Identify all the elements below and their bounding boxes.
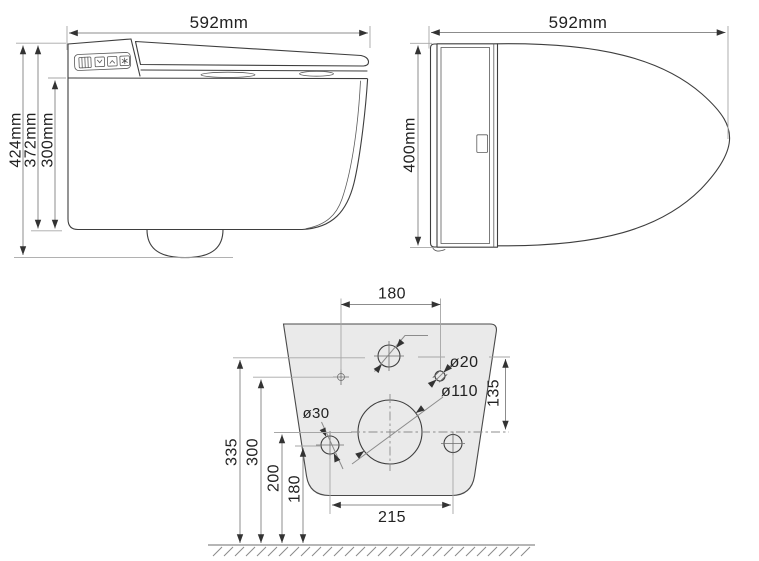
side-view: 592mm 424mm 372mm 300mm <box>8 13 371 258</box>
tank-top-edge <box>68 39 131 44</box>
label-300: 300 <box>245 438 262 466</box>
bowl-top-edge <box>68 78 367 79</box>
chevron-up-icon <box>110 60 115 63</box>
ground <box>208 545 535 556</box>
label-dia20: ø20 <box>450 354 479 371</box>
label-side-width: 592mm <box>190 13 249 32</box>
outlet-pipe <box>147 230 223 258</box>
hinge-damper-left <box>201 72 255 77</box>
label-200: 200 <box>266 464 283 492</box>
label-180-floor: 180 <box>287 475 304 503</box>
flush-button <box>477 135 488 153</box>
tank-box-outer <box>437 44 498 247</box>
label-dia110: ø110 <box>441 383 478 400</box>
dim-side-width: 592mm <box>67 13 370 50</box>
label-180-top: 180 <box>378 286 406 303</box>
label-top-length: 592mm <box>549 13 608 32</box>
asterisk-icon <box>122 58 127 64</box>
panel-button-2 <box>107 56 117 66</box>
hinge-damper-right <box>300 71 334 76</box>
technical-drawing-page: 592mm 424mm 372mm 300mm 592mm <box>0 0 759 561</box>
dim-side-heights: 424mm 372mm 300mm <box>8 43 234 257</box>
label-335: 335 <box>224 438 241 466</box>
label-135: 135 <box>486 379 503 407</box>
label-top-width: 400mm <box>402 117 419 172</box>
dim-top-length: 592mm <box>429 13 728 139</box>
seat-line <box>141 70 367 71</box>
lid-outline <box>136 42 369 67</box>
label-215: 215 <box>378 509 406 526</box>
top-view: 592mm 400mm <box>402 13 730 251</box>
toilet-dimension-drawing: 592mm 424mm 372mm 300mm 592mm <box>0 0 759 561</box>
label-height-body: 372mm <box>23 112 40 167</box>
ground-hatch <box>213 547 530 556</box>
label-height-seat: 300mm <box>40 112 57 167</box>
label-dia30: ø30 <box>302 405 329 422</box>
stripe-grille-lines <box>82 57 88 68</box>
back-strip <box>431 44 438 247</box>
bowl-inner-curve <box>306 81 361 229</box>
control-panel <box>74 52 131 70</box>
chevron-down-icon <box>97 60 102 63</box>
tank-box-inner <box>441 48 490 244</box>
seat-outline <box>498 44 730 246</box>
wall-mount-template: ø20 ø110 ø30 <box>208 286 535 557</box>
panel-button-1 <box>95 57 105 67</box>
